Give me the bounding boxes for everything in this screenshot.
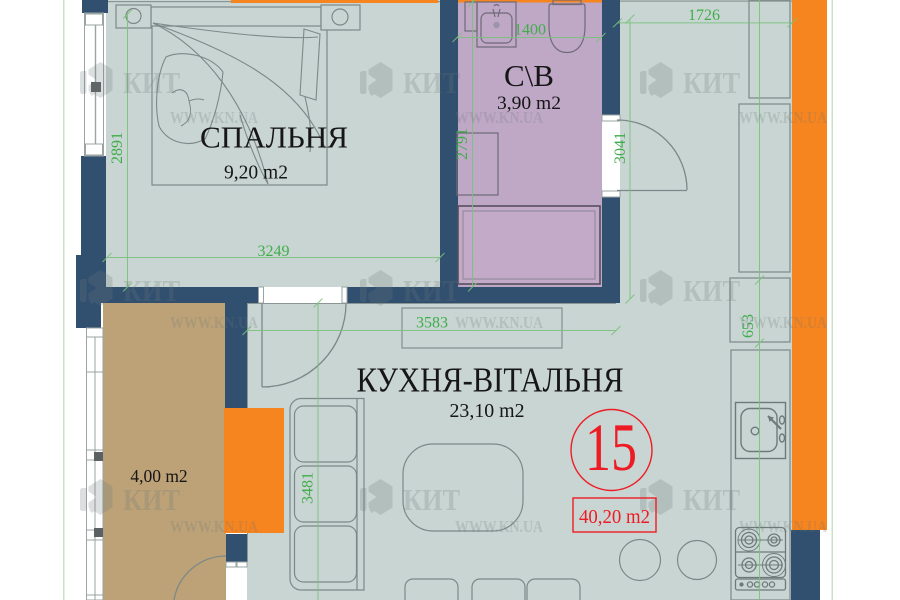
svg-text:3583: 3583	[416, 315, 448, 332]
svg-text:1726: 1726	[688, 7, 720, 24]
svg-text:23,10 m2: 23,10 m2	[450, 401, 525, 422]
svg-text:15: 15	[585, 409, 637, 485]
svg-text:4,00 m2: 4,00 m2	[130, 466, 187, 486]
svg-text:9,20 m2: 9,20 m2	[224, 163, 288, 184]
svg-text:3249: 3249	[258, 243, 290, 260]
svg-text:2891: 2891	[109, 132, 126, 164]
svg-text:3481: 3481	[300, 472, 317, 504]
svg-text:2791: 2791	[454, 128, 471, 160]
svg-text:С\В: С\В	[504, 58, 554, 93]
svg-text:3,90 m2: 3,90 m2	[497, 93, 561, 114]
svg-text:СПАЛЬНЯ: СПАЛЬНЯ	[200, 121, 348, 155]
svg-text:1400: 1400	[514, 22, 546, 39]
svg-text:3041: 3041	[612, 132, 629, 164]
svg-text:40,20 m2: 40,20 m2	[579, 506, 650, 528]
svg-text:КУХНЯ-ВІТАЛЬНЯ: КУХНЯ-ВІТАЛЬНЯ	[357, 361, 624, 400]
